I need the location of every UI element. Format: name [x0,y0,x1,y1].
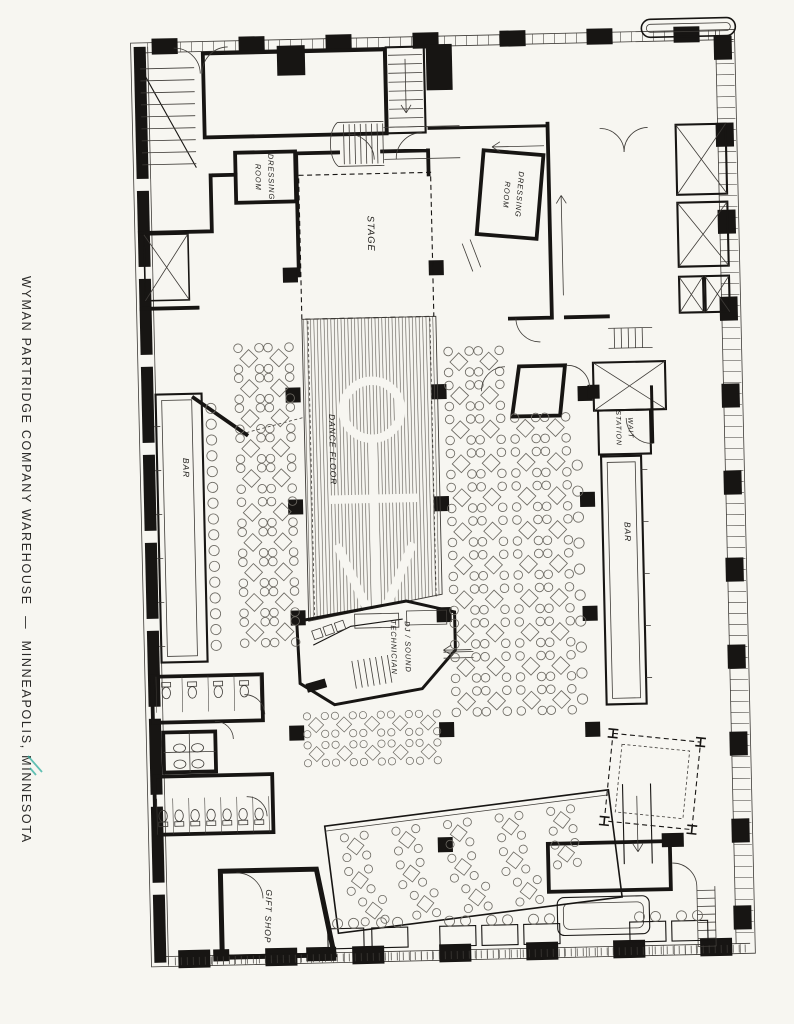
bench-seat [502,915,512,925]
table-with-chairs [388,739,414,765]
bar-stool [210,577,220,587]
table-with-chairs [265,403,295,433]
table-with-chairs [481,652,511,682]
gift-shop-label: GIFT SHOP [263,889,275,943]
table-with-chairs [387,710,413,736]
stair-tread [370,658,375,686]
table-with-chairs [545,616,575,646]
table-with-chairs [544,582,574,612]
dressing-room-right [428,122,608,320]
table-with-chairs [541,446,571,476]
bar-stool [577,694,587,704]
stair-tread [366,124,367,164]
bar-stool [210,609,220,619]
bar-stool [207,466,217,476]
stair-tread [360,124,361,164]
bar-stool [577,668,587,678]
column [585,722,600,737]
table-with-chairs [513,875,544,906]
table-with-chairs [447,483,477,513]
step-rail [697,886,698,946]
toilet-icon [162,682,171,699]
table-with-chairs [445,415,475,445]
stall-partition [173,798,174,834]
bar-left-label: BAR [181,458,191,478]
table-with-chairs [446,449,476,479]
column [289,725,304,740]
bar-stool [576,642,586,652]
column [582,606,597,621]
table-with-chairs [266,433,296,463]
table-with-chairs [240,617,270,647]
benches [327,910,708,949]
table-with-chairs [543,548,573,578]
table-with-chairs [358,895,389,926]
toilet-icon [238,808,247,825]
table-with-chairs [332,741,358,767]
table-with-chairs [360,740,386,766]
table-with-chairs [499,845,530,876]
table-with-chairs [396,858,427,889]
pilaster [725,557,744,581]
bar-right [570,385,658,705]
bar-stool [210,593,220,603]
bench [482,925,518,946]
table-with-chairs [303,712,329,738]
table-with-chairs [266,463,296,493]
stall-partition [182,676,183,712]
bench-seat [650,911,660,921]
bench [372,927,408,948]
table-with-chairs [474,380,504,410]
svg-text:TECHNICIAN: TECHNICIAN [389,620,399,675]
bar-stool [573,486,583,496]
dj-booth-label: DJ / SOUND [403,621,413,673]
bar-stool [574,564,584,574]
pilaster [721,383,740,407]
table-with-chairs [451,653,481,683]
building-plan: STAGE DANCE FLOOR DRESSING ROOM DRESSING… [130,17,756,968]
toilet-icon [254,808,263,825]
left-wall [132,47,168,963]
table-with-chairs [474,346,504,376]
bar-stool [573,512,583,522]
stall-partition [208,676,209,712]
table-with-chairs [451,687,481,717]
bar-stool [206,435,216,445]
table-with-chairs [478,550,508,580]
stall-partition [237,797,238,833]
bench-seat [444,916,454,926]
bar-stool [211,624,221,634]
left-wall-window [145,619,160,631]
table-with-chairs [234,343,264,373]
column [438,837,453,852]
table-with-chairs [515,617,545,647]
bar-left-stools [206,403,222,650]
toilet-icon [214,681,223,698]
vestibule-room [511,365,566,416]
table-with-chairs [448,551,478,581]
stair-tread [358,660,363,688]
bench-seat [376,918,386,928]
table-with-chairs [511,447,541,477]
table-with-chairs [447,851,478,882]
left-wall-window [151,883,166,895]
sink-icon [191,743,203,752]
table-with-chairs [410,888,441,919]
svg-text:STATION: STATION [614,410,622,446]
table-with-chairs [514,583,544,613]
sink-icon [192,759,204,768]
bench [524,924,560,945]
seating-south [303,710,441,767]
room-top-centre [203,42,454,138]
left-wall-window [143,531,158,543]
dressing-room-right-label: DRESSING [513,171,526,218]
stall-partition [221,797,222,833]
stair-tread [376,657,381,685]
toilet-icon [190,809,199,826]
table-with-chairs [340,831,371,862]
stair-tread [371,124,372,164]
bar-stool [576,616,586,626]
bar-stool [209,561,219,571]
bench-seat [634,912,644,922]
bar-stool [574,538,584,548]
stair-tread [355,124,356,164]
stall-partition [269,796,270,832]
table-with-chairs [444,347,474,377]
table-with-chairs [359,711,385,737]
bar-stool [211,640,221,650]
stair-tread [388,55,422,56]
table-with-chairs [476,448,506,478]
bench [440,926,476,947]
pilaster [151,38,177,55]
pilaster [714,35,733,59]
stall-partition [253,797,254,833]
stair-tread [383,123,384,163]
table-with-chairs [415,710,441,736]
stair-tread [377,124,378,164]
table-with-chairs [513,549,543,579]
table-with-chairs [475,414,505,444]
stair-top-left [140,66,196,169]
column [439,722,454,737]
bar-stool [209,545,219,555]
wait-station [586,327,667,455]
toilet-icon [206,809,215,826]
table-with-chairs [234,373,264,403]
pilaster [238,36,264,53]
table-with-chairs [546,650,576,680]
column [429,260,444,275]
left-wall-window [135,179,150,191]
toilet-icon [222,809,231,825]
bar-stool [207,451,217,461]
table-with-chairs [391,824,422,855]
stage [295,120,463,320]
stair-tread [381,656,386,684]
table-with-chairs [448,517,478,547]
table-with-chairs [516,651,546,681]
left-wall-window [141,443,156,455]
table-with-chairs [304,741,330,767]
table-with-chairs [512,481,542,511]
table-with-chairs [542,480,572,510]
stair-tread [343,124,344,164]
table-with-chairs [543,514,573,544]
table-with-chairs [264,343,294,373]
floor-plan-drawing: STAGE DANCE FLOOR DRESSING ROOM DRESSING… [0,0,794,1024]
bar-stool [572,460,582,470]
table-with-chairs [238,527,268,557]
table-with-chairs [239,587,269,617]
pilaster [673,26,699,43]
toilet-icon [188,682,197,699]
left-wall-window [139,355,154,367]
bar-stool [208,498,218,508]
truss-overlay [599,729,706,834]
table-with-chairs [477,482,507,512]
platform-ramp [622,784,652,865]
stair-tread [389,118,423,119]
pilaster [325,34,351,51]
seating-right [444,344,577,716]
table-with-chairs [479,584,509,614]
pilaster [723,470,742,494]
bench-seat [486,915,496,925]
bench-seat [348,918,358,928]
table-with-chairs [546,684,576,714]
table-with-chairs [445,381,475,411]
bar-right-label: BAR [623,522,633,542]
stair-tread [364,659,369,687]
pilaster [731,818,750,842]
table-with-chairs [495,811,526,842]
table-with-chairs [268,527,298,557]
pilaster [729,731,748,755]
bar-stool [206,419,216,429]
scan-artifact [28,756,42,775]
bench-seat [544,914,554,924]
table-with-chairs [478,516,508,546]
table-with-chairs [416,739,442,765]
pilaster [586,28,612,45]
bench-seat [528,914,538,924]
stall-partition [189,798,190,834]
sink-icon [173,744,185,753]
pilaster [727,644,746,668]
table-with-chairs [331,712,357,738]
stage-label: STAGE [365,216,377,252]
room-bottom-right [548,832,717,950]
svg-text:ROOM: ROOM [253,164,263,191]
sink-icon [174,760,186,769]
stair-tread [349,124,350,164]
pilaster [733,905,752,929]
restrooms [152,674,274,835]
table-with-chairs [480,618,510,648]
table-with-chairs [513,515,543,545]
table-with-chairs [237,497,267,527]
bar-stool [208,514,218,524]
pilaster [499,30,525,47]
dance-floor [302,316,443,648]
table-with-chairs [344,864,375,895]
table-with-chairs [238,557,268,587]
bench-seat [676,911,686,921]
bar-left [154,393,222,662]
step-rail [715,886,716,946]
rooms-left-middle [139,173,305,437]
table-with-chairs [268,557,298,587]
left-wall-window [147,707,162,719]
bar-stool [209,530,219,540]
table-with-chairs [236,463,266,493]
table-with-chairs [481,686,511,716]
table-with-chairs [236,433,266,463]
dance-floor-label: DANCE FLOOR [327,414,339,486]
stall-partition [234,675,235,711]
table-with-chairs [516,685,546,715]
seating-platform [325,790,622,933]
table-with-chairs [546,804,577,835]
toilet-icon [174,810,183,826]
bar-stool [207,482,217,492]
stair-tread [352,661,357,689]
column [283,267,298,282]
wait-station-label: WAIT [626,417,633,438]
svg-text:ROOM: ROOM [501,181,512,209]
bar-stool [575,590,585,600]
dressing-room-left [235,151,296,202]
stall-partition [205,798,206,834]
dressing-room-left-label: DRESSING [266,154,276,201]
table-with-chairs [461,882,492,913]
